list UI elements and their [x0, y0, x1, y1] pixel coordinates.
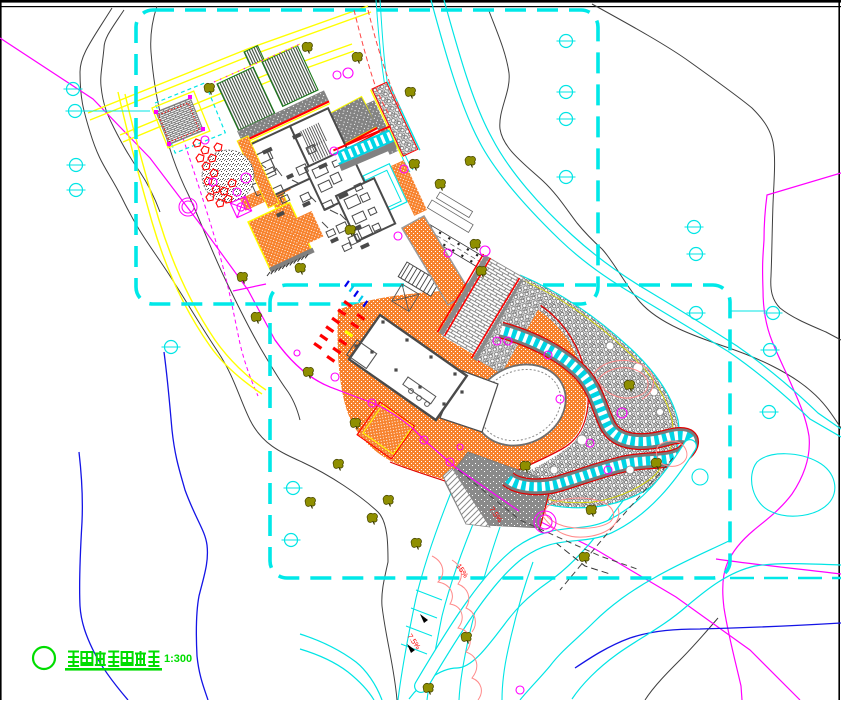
svg-text:1:300: 1:300	[164, 653, 192, 665]
